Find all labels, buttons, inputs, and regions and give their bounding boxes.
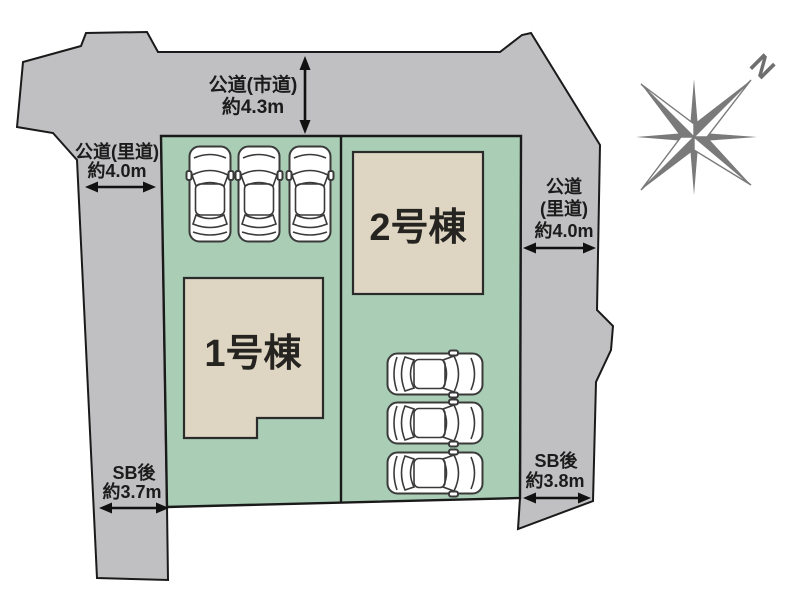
setback-right-label: SB後 約3.8m — [525, 450, 584, 491]
svg-text:公道(市道): 公道(市道) — [209, 73, 298, 96]
site-plan-page: 1号棟 2号棟 — [0, 0, 800, 600]
site-plan-drawing: 1号棟 2号棟 — [0, 0, 800, 600]
car-icon — [187, 147, 234, 242]
svg-text:約4.0m: 約4.0m — [534, 220, 593, 241]
left-road-label: 公道(里道) 約4.0m — [75, 141, 159, 181]
north-label: N — [743, 48, 780, 85]
car-icon — [388, 351, 483, 398]
svg-text:約4.3m: 約4.3m — [222, 95, 284, 118]
compass-rose: N — [636, 48, 781, 195]
svg-text:SB後: SB後 — [534, 450, 578, 471]
svg-text:約3.7m: 約3.7m — [102, 481, 161, 502]
svg-text:SB後: SB後 — [112, 462, 156, 483]
svg-text:公道: 公道 — [546, 176, 582, 197]
car-icon — [388, 400, 483, 447]
car-icon — [388, 450, 483, 497]
svg-text:約3.8m: 約3.8m — [525, 470, 584, 491]
svg-text:(里道): (里道) — [540, 198, 588, 219]
svg-text:約4.0m: 約4.0m — [87, 160, 146, 181]
car-icon — [236, 147, 283, 242]
top-road-label: 公道(市道) 約4.3m — [209, 73, 298, 118]
building-2-label: 2号棟 — [369, 207, 467, 249]
svg-text:公道(里道): 公道(里道) — [75, 141, 159, 162]
building-1-label: 1号棟 — [204, 333, 302, 375]
car-icon — [287, 147, 334, 242]
